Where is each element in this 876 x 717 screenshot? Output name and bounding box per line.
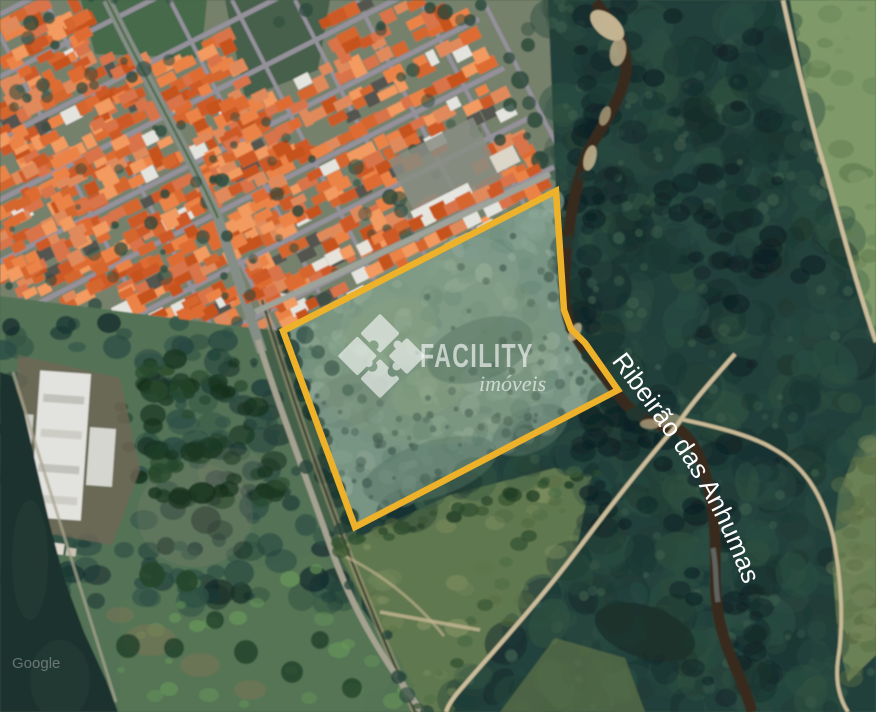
- svg-text:Google: Google: [12, 655, 60, 672]
- svg-text:imóveis: imóveis: [479, 371, 546, 396]
- svg-text:FACILITY: FACILITY: [420, 338, 534, 375]
